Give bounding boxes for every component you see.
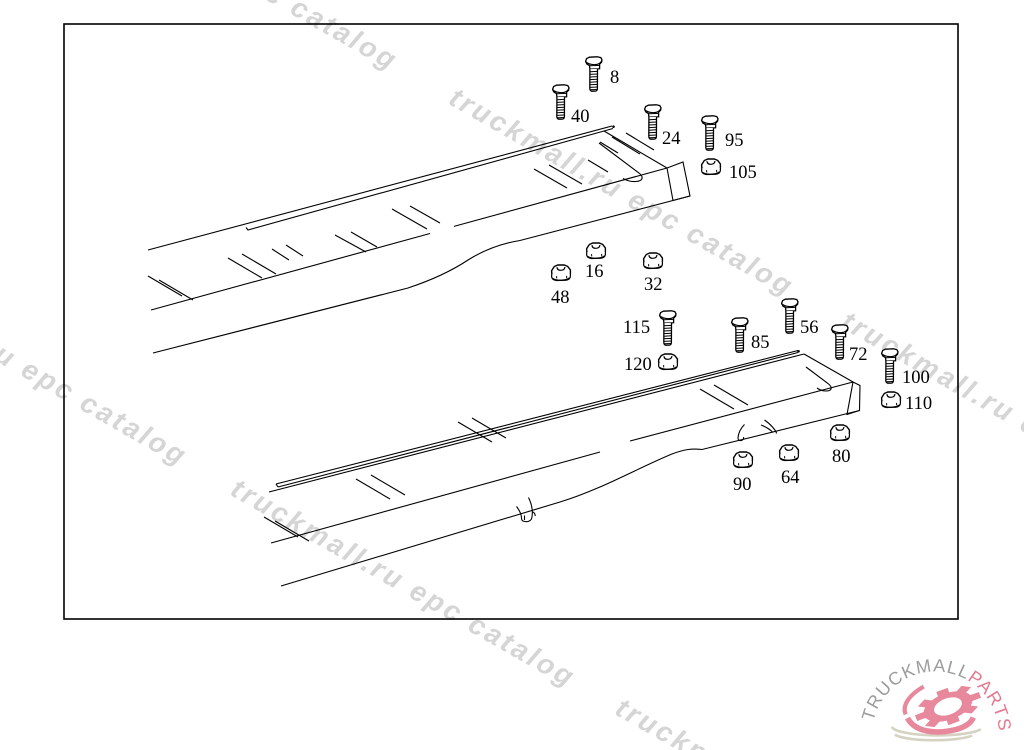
svg-text:110: 110 bbox=[905, 394, 932, 414]
svg-text:truckmall.ru epc catalog: truckmall.ru epc catalog bbox=[836, 305, 1024, 526]
svg-text:90: 90 bbox=[733, 475, 752, 495]
svg-text:72: 72 bbox=[849, 345, 868, 365]
svg-text:16: 16 bbox=[585, 262, 604, 282]
svg-text:64: 64 bbox=[781, 468, 800, 488]
svg-text:40: 40 bbox=[571, 107, 590, 127]
svg-text:105: 105 bbox=[729, 163, 757, 183]
svg-text:truckmall.ru epc catalog: truckmall.ru epc catalog bbox=[0, 251, 193, 472]
svg-text:48: 48 bbox=[551, 288, 570, 308]
svg-text:56: 56 bbox=[800, 318, 819, 338]
svg-text:8: 8 bbox=[610, 68, 619, 88]
svg-text:85: 85 bbox=[751, 333, 770, 353]
svg-text:truckmall.ru epc catalog: truckmall.ru epc catalog bbox=[226, 472, 582, 693]
svg-text:95: 95 bbox=[725, 131, 744, 151]
svg-text:120: 120 bbox=[624, 355, 652, 375]
svg-text:truckmall.ru epc catalog: truckmall.ru epc catalog bbox=[444, 81, 800, 302]
svg-text:115: 115 bbox=[623, 318, 650, 338]
svg-text:100: 100 bbox=[902, 368, 930, 388]
svg-text:80: 80 bbox=[832, 447, 851, 467]
svg-text:32: 32 bbox=[644, 275, 663, 295]
svg-text:24: 24 bbox=[662, 129, 681, 149]
svg-text:truckmall.ru epc catalog: truckmall.ru epc catalog bbox=[48, 0, 404, 77]
